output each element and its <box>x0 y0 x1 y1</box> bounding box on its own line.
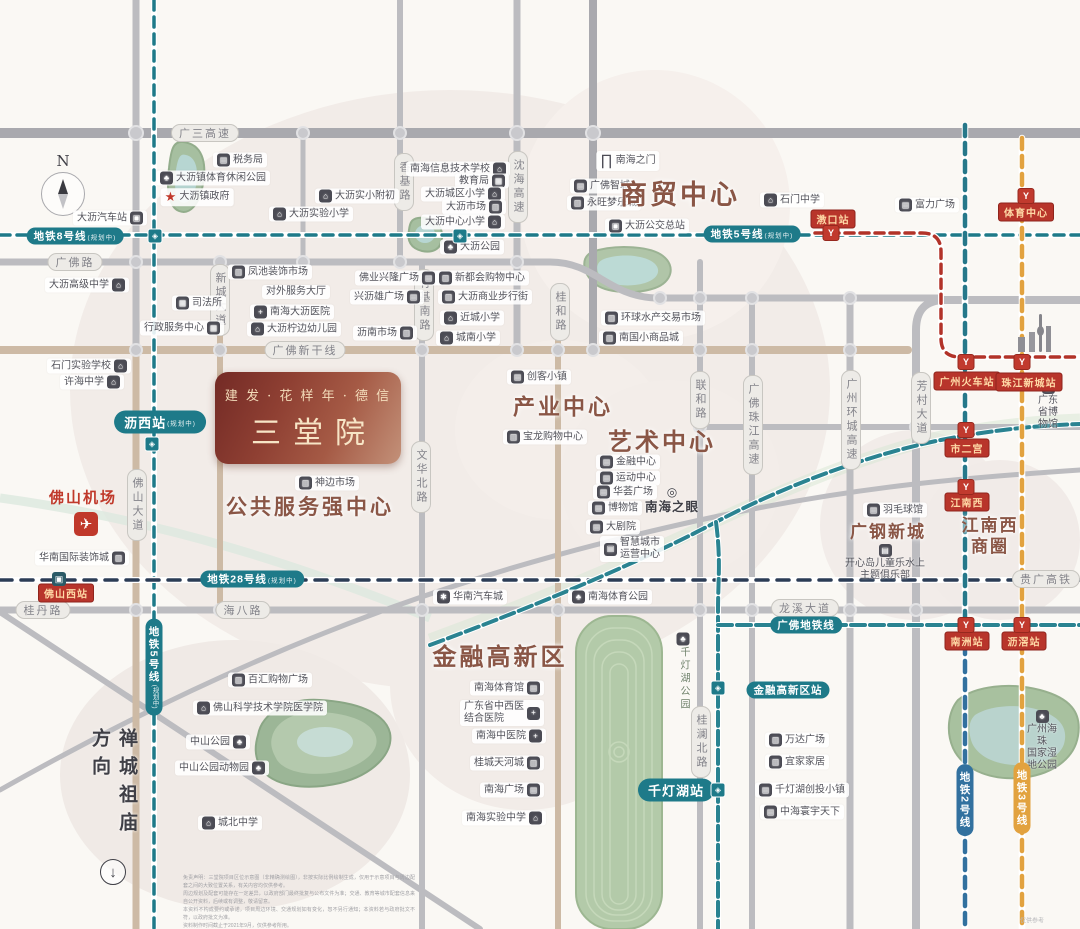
bus-icon: ▣ <box>609 220 622 233</box>
compass: N <box>40 152 86 216</box>
poi-label: ▥万达广场 <box>765 733 829 748</box>
poi-label: ♣广州海珠 国家湿地公园 <box>1023 709 1061 773</box>
poi-text: 南海体育公园 <box>588 591 648 603</box>
park-icon: ♣ <box>1036 710 1049 723</box>
poi-label: ▤千灯湖创投小镇 <box>755 783 849 798</box>
poi-text: 百汇购物广场 <box>248 674 308 686</box>
poi-text: 南海实验中学 <box>466 812 526 824</box>
station-badge: 江南西 <box>945 493 990 512</box>
poi-text: 南海之门 <box>616 155 656 167</box>
poi-text: 对外服务大厅 <box>266 286 326 298</box>
school-icon: ⌂ <box>440 332 453 345</box>
building-icon: ▤ <box>600 472 613 485</box>
metro-pill-text: 地铁3号线 <box>1015 769 1030 827</box>
building-icon: ▤ <box>407 291 420 304</box>
market-icon: ▥ <box>605 312 618 325</box>
road-label: 广三高速 <box>171 124 239 142</box>
poi-label: ▤羽毛球馆 <box>863 503 927 518</box>
metro-pill-subtext: (规划中) <box>268 574 297 584</box>
airport-label: 佛山机场 <box>49 487 117 508</box>
road-label: 桂澜北路 <box>691 706 711 778</box>
market-icon: ▥ <box>299 477 312 490</box>
poi-text: 城北中学 <box>218 817 258 829</box>
market-icon: ▥ <box>232 266 245 279</box>
park-icon: ♣ <box>252 762 265 775</box>
school-icon: ⌂ <box>197 702 210 715</box>
road-label: 贵广高铁 <box>1012 570 1080 588</box>
logo-brand-names: 建 发 · 花 样 年 · 德 信 <box>225 385 391 404</box>
metro-logo-y-icon: Y <box>958 479 975 495</box>
metro-line-icon: ◈ <box>453 229 468 244</box>
building-icon: ▤ <box>527 784 540 797</box>
district-title: 金融高新区 <box>433 643 568 673</box>
poi-label: ▤税务局 <box>213 153 267 168</box>
road-label: 海八路 <box>216 601 271 619</box>
metro-line-icon: ◈ <box>711 783 726 798</box>
project-logo: 建 发 · 花 样 年 · 德 信 三堂院 <box>215 372 401 464</box>
metro-logo-y-icon: Y <box>1014 617 1031 633</box>
building-icon: ▤ <box>867 504 880 517</box>
road-label: 联和路 <box>690 371 710 429</box>
metro-station-pill: 沥西站(规划中) <box>114 411 206 434</box>
road-label: 文华北路 <box>411 441 431 513</box>
poi-label: ▥新都会购物中心 <box>435 271 529 286</box>
building-icon: ▤ <box>604 543 617 556</box>
metro-logo-y-icon: Y <box>958 422 975 438</box>
poi-text: 大沥汽车站 <box>77 212 127 224</box>
disclaimer-line: 免责声明：三堂院项目区位示意图（非精确测绘图），非按实际比例绘制生成，仅用于示意… <box>183 874 415 890</box>
poi-text: 宝龙购物中心 <box>523 431 583 443</box>
hospital-icon: + <box>529 730 542 743</box>
metro-station-pill: 广佛地铁线 <box>770 617 842 634</box>
poi-text: 大沥市场 <box>446 201 486 213</box>
school-icon: ⌂ <box>444 312 457 325</box>
poi-label: ▥南国小商品城 <box>599 331 683 346</box>
metro-line-icon: ◈ <box>711 681 726 696</box>
metro-station-pill: 金融高新区站 <box>747 682 830 699</box>
school-icon: ⌂ <box>107 376 120 389</box>
location-map: N 建 发 · 花 样 年 · 德 信 三堂院 ▤税务局♣大沥镇体育休闲公园★大… <box>0 0 1080 929</box>
school-icon: ⌂ <box>112 279 125 292</box>
poi-label: 大沥汽车站▣ <box>73 211 147 226</box>
park-icon: ♣ <box>572 591 585 604</box>
poi-label: ▦司法所 <box>172 296 226 311</box>
poi-label: ◎南海之眼 <box>641 484 703 516</box>
road-label: 芳村大道 <box>911 372 931 444</box>
metro-pill-text: 地铁5号线 <box>711 227 764 242</box>
metro-station-pill: 地铁8号线(规划中) <box>27 228 124 245</box>
poi-label: ▥宝龙购物中心 <box>503 430 587 445</box>
poi-label: 大沥中心小学⌂ <box>421 215 505 230</box>
poi-label: 兴沥雄广场▤ <box>350 290 424 305</box>
metro-pill-text: 地铁28号线 <box>207 572 267 587</box>
poi-label: 中山公园♣ <box>186 735 250 750</box>
poi-text: 桂城天河城 <box>474 757 524 769</box>
station-badge: 珠江新城站 <box>996 373 1063 392</box>
poi-text: 中山公园 <box>190 736 230 748</box>
district-title: 广钢新城 <box>850 521 926 542</box>
district-title: 产业中心 <box>513 393 613 421</box>
poi-text: 创客小镇 <box>527 371 567 383</box>
poi-text: 行政服务中心 <box>144 322 204 334</box>
school-icon: ⌂ <box>764 194 777 207</box>
poi-label: ▥百汇购物广场 <box>228 673 312 688</box>
poi-label: ⌂城南小学 <box>436 331 500 346</box>
poi-text: 近城小学 <box>460 312 500 324</box>
poi-label: ⌂佛山科学技术学院医学院 <box>193 701 327 716</box>
station-badge: 体育中心 <box>998 203 1054 222</box>
metro-station-pill: 地铁3号线 <box>1014 762 1031 834</box>
poi-text: 大沥中心小学 <box>425 216 485 228</box>
compass-needle-icon <box>41 172 85 216</box>
poi-text: 广东省中西医 结合医院 <box>464 701 524 725</box>
metro-logo-y-icon: Y <box>1014 354 1031 370</box>
park-icon: ♣ <box>233 736 246 749</box>
gov-icon: ▦ <box>207 322 220 335</box>
school-icon: ⌂ <box>273 208 286 221</box>
market-icon: ▥ <box>527 757 540 770</box>
school-icon: ⌂ <box>488 216 501 229</box>
poi-text: 佛山科学技术学院医学院 <box>213 702 323 714</box>
metro-pill-text: 广佛地铁线 <box>777 618 835 633</box>
market-icon: ▥ <box>232 674 245 687</box>
metro-pill-text: 千灯湖站 <box>648 781 704 800</box>
metro-station-pill: 地铁2号线 <box>957 764 974 836</box>
building-icon: ▤ <box>899 199 912 212</box>
metro-station-pill: 地铁28号线(规划中) <box>200 571 304 588</box>
metro-line-icon: ◈ <box>148 229 163 244</box>
metro-station-pill: 千灯湖站 <box>638 779 714 802</box>
station-badge: 佛山西站 <box>38 584 94 603</box>
metro-pill-text: 地铁2号线 <box>958 771 973 829</box>
poi-label: ⌂城北中学 <box>198 816 262 831</box>
star-icon: ★ <box>165 189 177 205</box>
poi-label: 沥南市场▥ <box>353 326 417 341</box>
gear-icon: ✱ <box>437 591 450 604</box>
poi-label: 对外服务大厅 <box>262 285 330 299</box>
school-icon: ⌂ <box>319 190 332 203</box>
market-icon: ▥ <box>603 332 616 345</box>
poi-text: 中海寰宇天下 <box>780 806 840 818</box>
poi-label: ♣大沥公园 <box>440 240 504 255</box>
station-badge: 广州火车站 <box>934 372 1001 391</box>
poi-label: ▤富力广场 <box>895 198 959 213</box>
district-title: 艺术中心 <box>608 428 716 458</box>
poi-text: 石门中学 <box>780 194 820 206</box>
building-icon: ▤ <box>879 544 892 557</box>
poi-text: 南海大沥医院 <box>270 306 330 318</box>
poi-text: 南国小商品城 <box>619 332 679 344</box>
building-icon: ▤ <box>764 806 777 819</box>
poi-text: 南海体育馆 <box>474 682 524 694</box>
poi-text: 大沥柠边幼儿园 <box>267 323 337 335</box>
road-label: 龙溪大道 <box>771 599 839 617</box>
poi-label: ▥凤池装饰市场 <box>228 265 312 280</box>
district-title: 江南西 商圈 <box>962 515 1019 558</box>
metro-pill-subtext: (规划中) <box>149 685 159 709</box>
poi-text: 环球水产交易市场 <box>621 312 701 324</box>
hospital-icon: + <box>254 306 267 319</box>
poi-text: 千灯湖公园 <box>677 647 689 712</box>
poi-label: ⌂近城小学 <box>440 311 504 326</box>
poi-text: 广州海珠 国家湿地公园 <box>1027 724 1057 772</box>
poi-text: 佛业兴隆广场 <box>359 272 419 284</box>
station-badge: 市二宫 <box>945 439 990 458</box>
market-icon: ▥ <box>442 291 455 304</box>
poi-label: 石门实验学校⌂ <box>47 359 131 374</box>
eye-icon: ◎ <box>667 485 677 499</box>
poi-text: 教育局 <box>459 175 489 187</box>
metro-pill-text: 金融高新区站 <box>754 683 823 698</box>
poi-text: 华南汽车城 <box>453 591 503 603</box>
poi-text: 大沥实验小学 <box>289 208 349 220</box>
poi-text: 富力广场 <box>915 199 955 211</box>
metro-logo-y-icon: Y <box>958 354 975 370</box>
poi-text: 大沥高级中学 <box>49 279 109 291</box>
poi-text: 许海中学 <box>64 376 104 388</box>
poi-label: 广东省中西医 结合医院+ <box>460 700 544 726</box>
poi-text: 大沥镇体育休闲公园 <box>176 172 266 184</box>
poi-label: ⌂大沥柠边幼儿园 <box>247 322 341 337</box>
poi-text: 博物馆 <box>608 502 638 514</box>
district-title: 商贸中心 <box>620 179 740 213</box>
poi-label: ⌂石门中学 <box>760 193 824 208</box>
bus-icon: ▣ <box>130 212 143 225</box>
market-icon: ▥ <box>439 272 452 285</box>
poi-label: 大沥高级中学⌂ <box>45 278 129 293</box>
metro-pill-subtext: (规划中) <box>88 231 117 241</box>
poi-text: 万达广场 <box>785 734 825 746</box>
disclaimer-line: 资料制作时间截止于2021年9月，仅供参考所用。 <box>183 922 415 929</box>
poi-text: 运动中心 <box>616 472 656 484</box>
poi-label: 大沥市场▥ <box>442 200 506 215</box>
market-icon: ▥ <box>400 327 413 340</box>
poi-label: 南海体育馆▤ <box>470 681 544 696</box>
poi-label: ▥环球水产交易市场 <box>601 311 705 326</box>
down-arrow-icon: ↓ <box>100 859 126 885</box>
metro-station-pill: 地铁5号线(规划中) <box>704 226 801 243</box>
market-icon: ▥ <box>571 197 584 210</box>
poi-text: 宜家家居 <box>785 756 825 768</box>
poi-text: 大沥镇政府 <box>179 191 229 203</box>
metro-pill-text: 沥西站 <box>124 413 166 432</box>
poi-text: 大沥公交总站 <box>625 220 685 232</box>
poi-label: ∏南海之门 <box>596 151 659 171</box>
metro-pill-subtext: (规划中) <box>765 229 794 239</box>
road-label: 桂丹路 <box>16 601 71 619</box>
metro-station-pill: 地铁5号线(规划中) <box>146 619 163 716</box>
district-title: 公共服务强中心 <box>226 495 394 521</box>
market-icon: ▥ <box>769 756 782 769</box>
disclaimer-line: 周边规划及配套可能存在一定差异，以政府部门最终批复与公布文件为准；交通、教育等城… <box>183 890 415 906</box>
poi-label: ▥大沥商业步行街 <box>438 290 532 305</box>
poi-text: 石门实验学校 <box>51 360 111 372</box>
poi-label: ▤创客小镇 <box>507 370 571 385</box>
poi-text: 开心岛儿童乐水上 主题俱乐部 <box>845 558 925 582</box>
metro-logo-y-icon: Y <box>958 617 975 633</box>
road-label: 桂和路 <box>550 283 570 341</box>
road-label: 广州环城高速 <box>841 370 861 470</box>
logo-project-name: 三堂院 <box>239 408 377 452</box>
park-icon: ♣ <box>160 172 173 185</box>
poi-label: ★大沥镇政府 <box>161 188 234 206</box>
poi-text: 凤池装饰市场 <box>248 266 308 278</box>
poi-text: 大沥实小附初 <box>335 190 395 202</box>
poi-label: ▤中海寰宇天下 <box>760 805 844 820</box>
poi-text: 广东省博物馆 <box>1036 395 1060 431</box>
poi-text: 羽毛球馆 <box>883 504 923 516</box>
market-icon: ▥ <box>489 201 502 214</box>
gate-icon: ∏ <box>600 152 612 170</box>
gov-icon: ▦ <box>176 297 189 310</box>
poi-text: 南海中医院 <box>476 730 526 742</box>
school-icon: ⌂ <box>529 812 542 825</box>
building-icon: ▤ <box>422 272 435 285</box>
poi-text: 华南国际装饰城 <box>39 552 109 564</box>
road-label: 广佛珠江高速 <box>743 375 763 475</box>
poi-label: ▥神边市场 <box>295 476 359 491</box>
watermark: 仅供参考 <box>1020 916 1044 925</box>
park-icon: ♣ <box>677 633 690 646</box>
poi-label: ▤大剧院 <box>586 520 640 535</box>
station-badge: 沥滘站 <box>1002 632 1047 651</box>
poi-text: 南海之眼 <box>645 500 699 515</box>
road-label: 沈海高速 <box>508 151 528 223</box>
poi-text: 司法所 <box>192 297 222 309</box>
poi-label: ♣南海体育公园 <box>568 590 652 605</box>
poi-label: +南海大沥医院 <box>250 305 334 320</box>
metro-line-icon: ◈ <box>145 437 160 452</box>
poi-label: ▤智慧城市 运营中心 <box>600 536 664 562</box>
road-label: 佛山大道 <box>127 469 147 541</box>
school-icon: ⌂ <box>114 360 127 373</box>
poi-text: 新都会购物中心 <box>455 272 525 284</box>
poi-label: ⌂大沥实小附初 <box>315 189 399 204</box>
train-station-icon: ▣ <box>52 572 66 586</box>
building-icon: ▤ <box>759 784 772 797</box>
poi-label: ✱华南汽车城 <box>433 590 507 605</box>
building-icon: ▤ <box>590 521 603 534</box>
hospital-icon: + <box>527 707 540 720</box>
poi-label: ▤博物馆 <box>588 501 642 516</box>
poi-label: 许海中学⌂ <box>60 375 124 390</box>
poi-text: 税务局 <box>233 154 263 166</box>
poi-label: ♣千灯湖公园 <box>673 632 694 713</box>
poi-label: ▥宜家家居 <box>765 755 829 770</box>
poi-text: 智慧城市 运营中心 <box>620 537 660 561</box>
poi-label: 行政服务中心▦ <box>140 321 224 336</box>
poi-text: 南海广场 <box>484 784 524 796</box>
poi-label: 南海中医院+ <box>472 729 546 744</box>
poi-text: 城南小学 <box>456 332 496 344</box>
building-icon: ▤ <box>574 180 587 193</box>
disclaimer: 免责声明：三堂院项目区位示意图（非精确测绘图），非按实际比例绘制生成，仅用于示意… <box>183 874 415 929</box>
poi-label: ▤开心岛儿童乐水上 主题俱乐部 <box>841 543 929 583</box>
poi-text: 大沥城区小学 <box>425 188 485 200</box>
market-icon: ▥ <box>769 734 782 747</box>
poi-text: 兴沥雄广场 <box>354 291 404 303</box>
poi-label: 佛业兴隆广场▤ <box>355 271 439 286</box>
market-icon: ▥ <box>112 552 125 565</box>
poi-label: ▣大沥公交总站 <box>605 219 689 234</box>
station-badge: 南洲站 <box>945 632 990 651</box>
poi-label: 华南国际装饰城▥ <box>35 551 129 566</box>
direction-note: 禅城祖庙方向 <box>86 728 140 862</box>
poi-text: 大剧院 <box>606 521 636 533</box>
poi-text: 神边市场 <box>315 477 355 489</box>
poi-label: ⌂大沥实验小学 <box>269 207 353 222</box>
poi-label: 南海广场▤ <box>480 783 544 798</box>
poi-text: 千灯湖创投小镇 <box>775 784 845 796</box>
poi-label: 桂城天河城▥ <box>470 756 544 771</box>
building-icon: ▤ <box>592 502 605 515</box>
building-icon: ▤ <box>217 154 230 167</box>
road-label: 广佛新干线 <box>265 341 346 359</box>
metro-pill-text: 地铁5号线 <box>147 626 162 684</box>
poi-label: 南海实验中学⌂ <box>462 811 546 826</box>
road-label: 广佛路 <box>48 253 103 271</box>
compass-n-label: N <box>40 152 86 170</box>
school-icon: ⌂ <box>202 817 215 830</box>
building-icon: ▤ <box>597 486 610 499</box>
metro-logo-y-icon: Y <box>1018 188 1035 204</box>
building-icon: ▤ <box>511 371 524 384</box>
city-skyline-icon <box>1018 308 1078 352</box>
disclaimer-line: 本资料不构成要约或承诺，项目周边环境、交通规划如有变化，恕不另行通知；本资料若与… <box>183 906 415 922</box>
building-icon: ▤ <box>527 682 540 695</box>
metro-pill-text: 地铁8号线 <box>34 229 87 244</box>
school-icon: ⌂ <box>251 323 264 336</box>
poi-text: 大沥商业步行街 <box>458 291 528 303</box>
metro-pill-subtext: (规划中) <box>167 417 196 427</box>
poi-label: 中山公园动物园♣ <box>175 761 269 776</box>
poi-text: 中山公园动物园 <box>179 762 249 774</box>
poi-text: 沥南市场 <box>357 327 397 339</box>
plane-icon: ✈ <box>74 512 98 536</box>
poi-label: ♣大沥镇体育休闲公园 <box>156 171 270 186</box>
metro-logo-y-icon: Y <box>823 225 840 241</box>
market-icon: ▥ <box>507 431 520 444</box>
